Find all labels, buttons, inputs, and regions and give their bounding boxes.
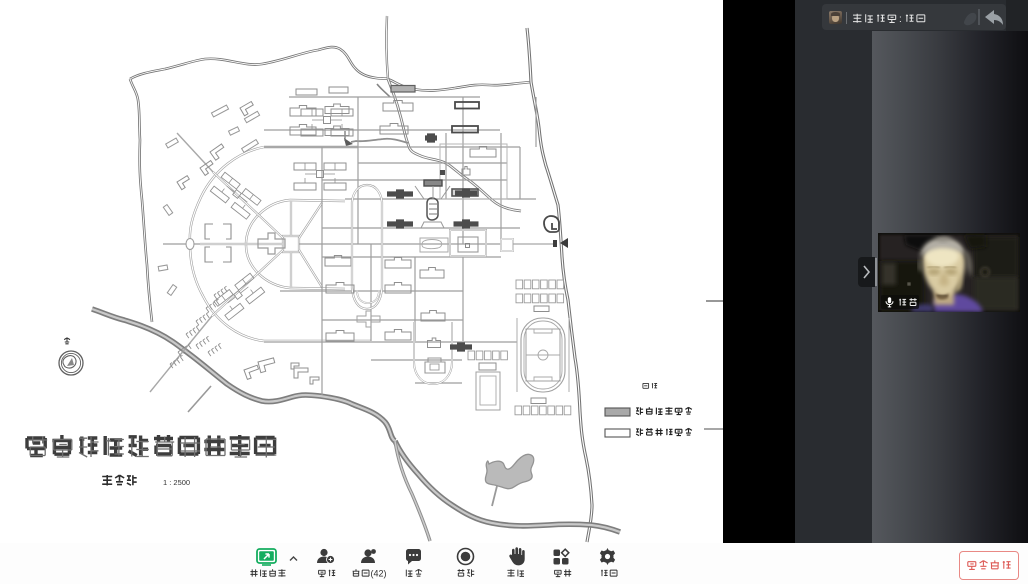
svg-text::: :	[899, 14, 902, 25]
svg-text:1 : 2500: 1 : 2500	[163, 478, 190, 487]
svg-text:(42): (42)	[371, 569, 387, 579]
